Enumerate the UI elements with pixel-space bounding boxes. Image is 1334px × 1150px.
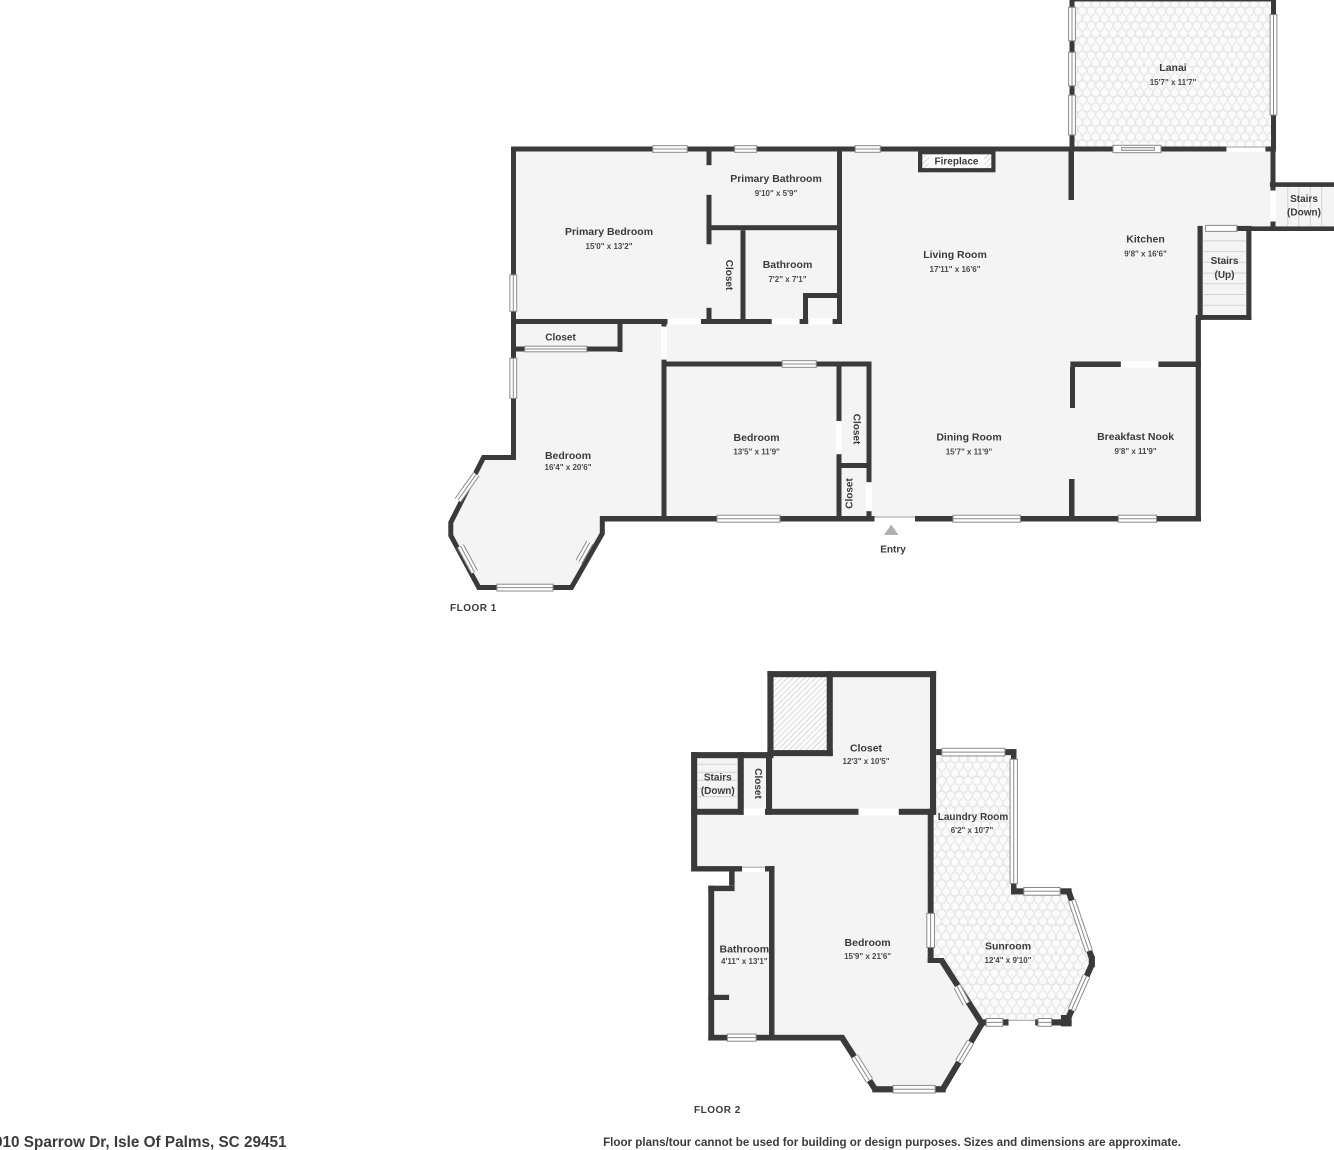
svg-text:Fireplace: Fireplace [935,157,979,168]
svg-text:2910 Sparrow Dr, Isle Of Palms: 2910 Sparrow Dr, Isle Of Palms, SC 29451 [0,1134,287,1150]
svg-text:Breakfast Nook: Breakfast Nook [1097,431,1174,443]
svg-text:9'8" x 16'6": 9'8" x 16'6" [1124,250,1167,259]
svg-text:9'10" x 5'9": 9'10" x 5'9" [755,189,798,198]
svg-text:Sunroom: Sunroom [985,941,1031,953]
svg-text:Closet: Closet [545,333,576,344]
svg-text:Stairs: Stairs [704,773,732,784]
svg-text:6'2" x 10'7": 6'2" x 10'7" [951,826,994,835]
svg-text:4'11" x 13'1": 4'11" x 13'1" [721,957,768,966]
svg-text:17'11" x 16'6": 17'11" x 16'6" [930,265,981,274]
svg-text:7'2" x 7'1": 7'2" x 7'1" [768,275,806,284]
svg-text:12'3" x 10'5": 12'3" x 10'5" [843,757,890,766]
svg-text:(Down): (Down) [1287,208,1321,219]
svg-text:Primary Bedroom: Primary Bedroom [565,226,653,238]
svg-text:Bedroom: Bedroom [845,937,891,949]
svg-text:Bedroom: Bedroom [734,432,780,444]
svg-text:Bathroom: Bathroom [720,944,770,956]
svg-text:15'0" x 13'2": 15'0" x 13'2" [586,242,633,251]
svg-text:9'8" x 11'9": 9'8" x 11'9" [1115,447,1157,456]
svg-text:(Up): (Up) [1215,270,1235,281]
svg-text:Lanai: Lanai [1159,62,1187,74]
svg-text:Closet: Closet [845,478,856,509]
svg-text:FLOOR 1: FLOOR 1 [450,603,497,614]
svg-text:15'9" x 21'6": 15'9" x 21'6" [844,952,891,961]
svg-text:Kitchen: Kitchen [1126,234,1165,246]
svg-text:Living Room: Living Room [923,249,987,261]
svg-text:Floor plans/tour cannot be use: Floor plans/tour cannot be used for buil… [603,1136,1181,1149]
svg-text:15'7" x 11'9": 15'7" x 11'9" [946,448,993,457]
svg-text:Entry: Entry [880,545,906,556]
svg-text:Bedroom: Bedroom [545,450,591,462]
svg-text:16'4" x 20'6": 16'4" x 20'6" [545,463,592,472]
svg-text:Primary Bathroom: Primary Bathroom [730,173,822,185]
svg-text:(Down): (Down) [701,786,735,797]
svg-text:Closet: Closet [850,743,883,755]
svg-text:Bathroom: Bathroom [763,259,813,271]
svg-text:Stairs: Stairs [1211,256,1239,267]
svg-text:13'5" x 11'9": 13'5" x 11'9" [733,448,780,457]
svg-text:Closet: Closet [723,260,734,291]
svg-text:12'4" x 9'10": 12'4" x 9'10" [985,956,1032,965]
svg-text:Stairs: Stairs [1290,194,1318,205]
svg-text:Closet: Closet [752,768,763,799]
svg-text:Laundry Room: Laundry Room [938,812,1009,823]
svg-text:Closet: Closet [851,414,862,445]
svg-text:Dining Room: Dining Room [936,432,1001,444]
svg-text:15'7" x 11'7": 15'7" x 11'7" [1150,78,1197,87]
svg-text:FLOOR 2: FLOOR 2 [694,1105,741,1116]
